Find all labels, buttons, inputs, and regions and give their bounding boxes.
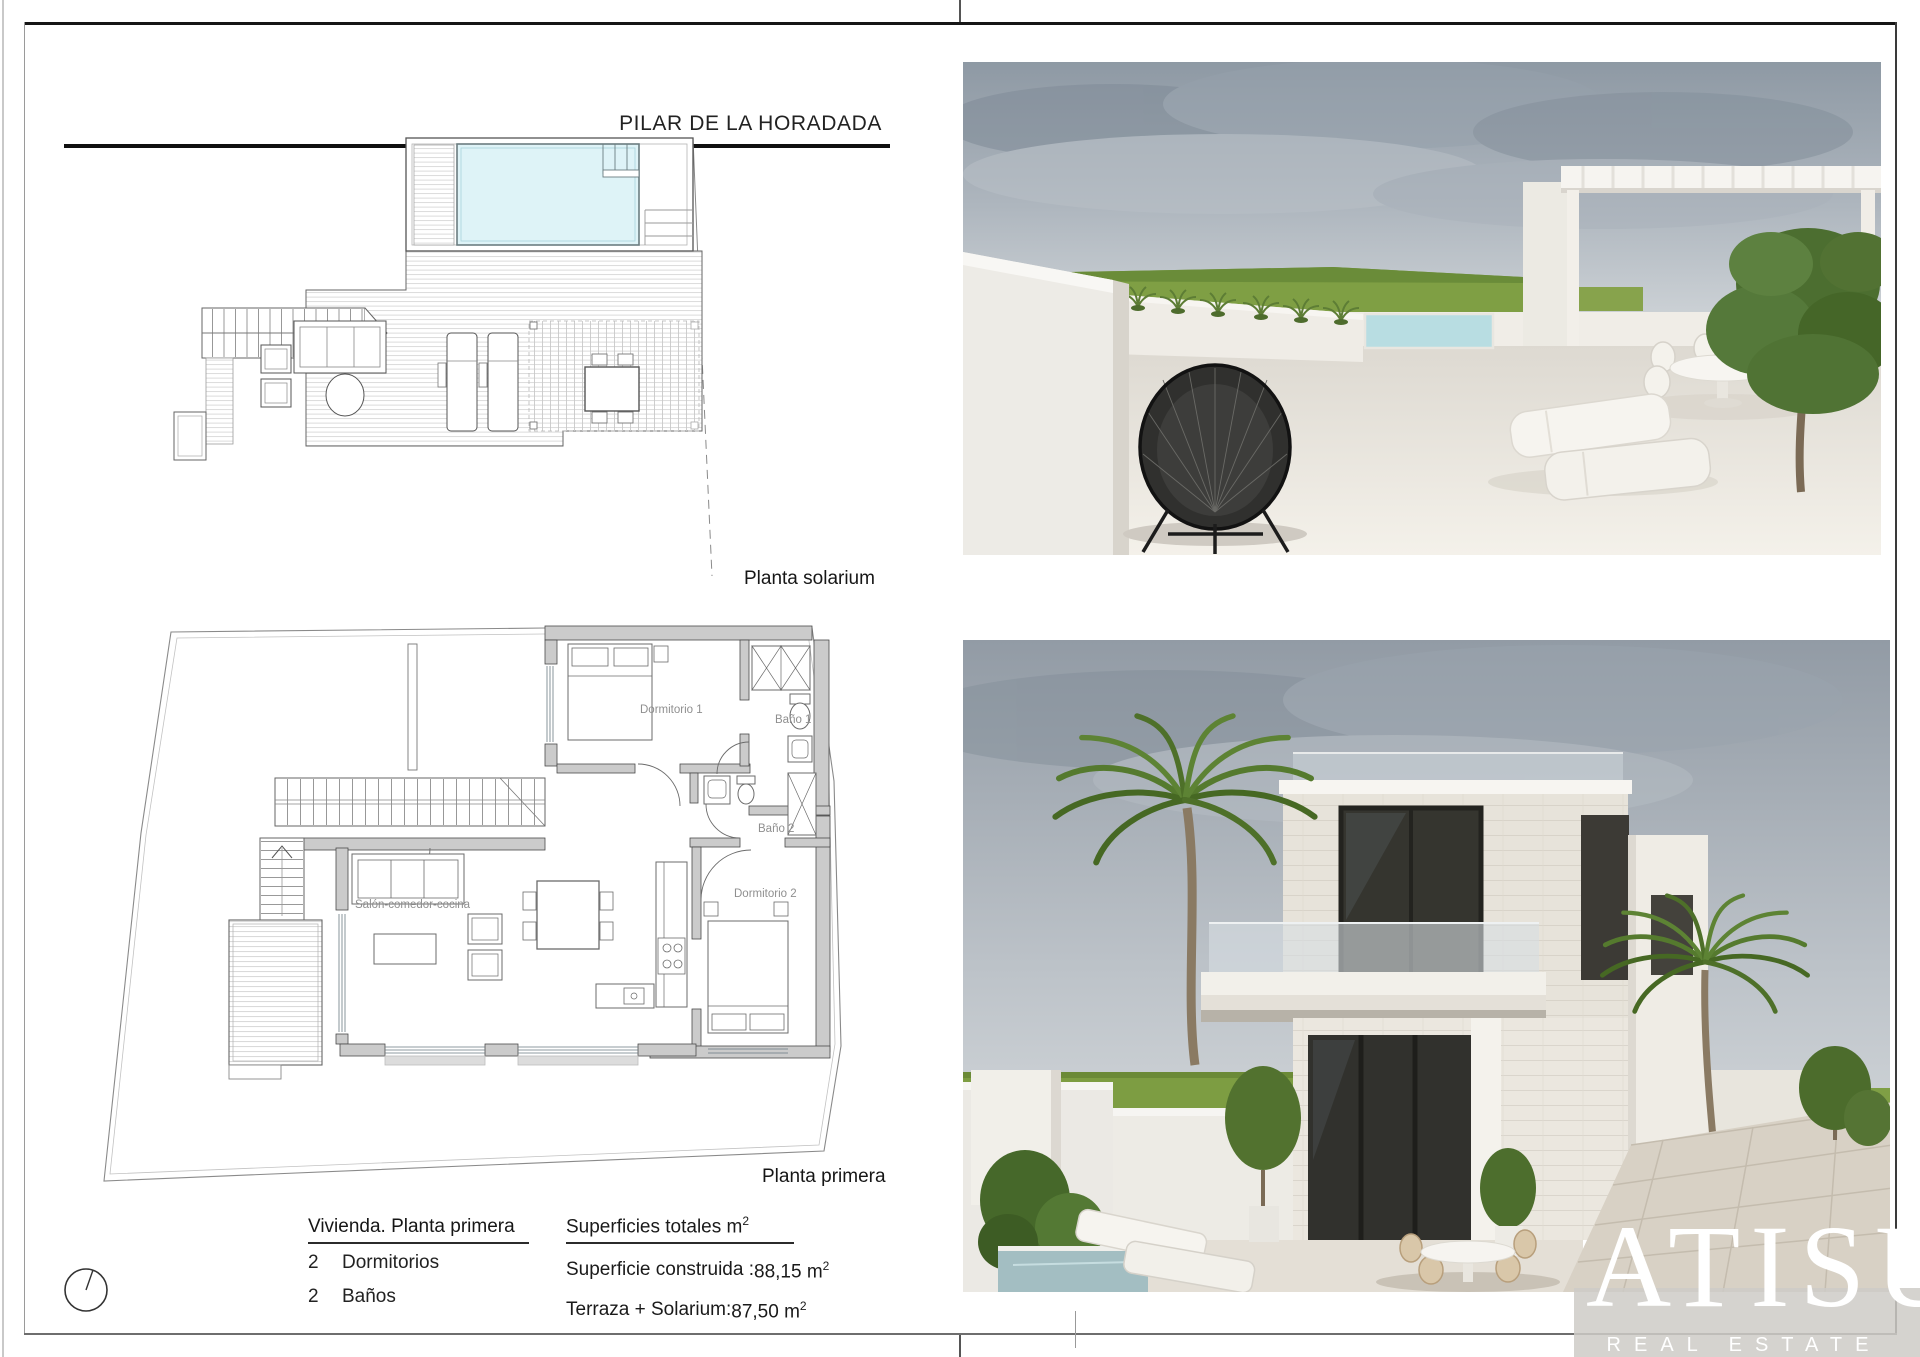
feature-bathrooms: 2Baños bbox=[308, 1286, 396, 1308]
surface-row-built: Superficie construida : 88,15 m2 bbox=[566, 1259, 794, 1283]
bedrooms-label: Dormitorios bbox=[342, 1252, 439, 1273]
crop-mark-bottom bbox=[959, 1335, 961, 1357]
rooftop-pool bbox=[1365, 314, 1493, 348]
brand-tagline: REAL ESTATE bbox=[1586, 1334, 1902, 1357]
sup-2: 2 bbox=[742, 1214, 749, 1228]
room-label-bedroom1: Dormitorio 1 bbox=[640, 704, 703, 716]
left-parapet-wall bbox=[963, 252, 1129, 555]
north-arrow-icon bbox=[60, 1262, 114, 1316]
entry-stairs bbox=[260, 838, 304, 920]
upper-window-right bbox=[1581, 815, 1629, 980]
solarium-plan-caption: Planta solarium bbox=[744, 568, 875, 590]
dining-table bbox=[523, 881, 613, 949]
room-label-bath2: Baño 2 bbox=[758, 823, 794, 835]
scan-edge-line bbox=[2, 0, 4, 1357]
terrace-value: 87,50 m2 bbox=[731, 1299, 806, 1323]
pool-deck-strip bbox=[414, 145, 454, 245]
living-armchairs bbox=[468, 914, 502, 980]
swimming-pool bbox=[457, 144, 639, 245]
crop-mark-top bbox=[959, 0, 961, 22]
pool-terrace bbox=[406, 138, 694, 251]
brochure-page: PILAR DE LA HORADADA bbox=[0, 0, 1920, 1357]
plot-boundary bbox=[104, 628, 841, 1181]
surfaces-heading: Superficies totales m2 bbox=[566, 1214, 794, 1244]
page-border-top bbox=[24, 22, 1897, 25]
balcony-glass bbox=[1209, 922, 1539, 976]
first-floor-plan: Dormitorio 1 Baño 1 Baño 2 Dormitorio 2 … bbox=[40, 616, 920, 1216]
armchairs bbox=[261, 345, 291, 407]
terrace-label: Terraza + Solarium: bbox=[566, 1299, 731, 1323]
coffee-table bbox=[374, 934, 436, 964]
bedrooms-qty: 2 bbox=[308, 1252, 342, 1274]
bathrooms-qty: 2 bbox=[308, 1286, 342, 1308]
wall-column bbox=[408, 644, 417, 770]
brand-logo-text: ATISÚ bbox=[1586, 1208, 1902, 1326]
page-border-left bbox=[24, 22, 25, 1334]
terrace bbox=[229, 920, 322, 1079]
room-label-living: Salón-comedor-cocina bbox=[355, 899, 471, 911]
built-label: Superficie construida : bbox=[566, 1259, 754, 1283]
wardrobe bbox=[752, 646, 810, 690]
photo-exterior-render bbox=[963, 640, 1890, 1292]
round-table bbox=[326, 374, 364, 416]
page-border-right bbox=[1895, 22, 1897, 1334]
room-label-bedroom2: Dormitorio 2 bbox=[734, 888, 797, 900]
bathrooms-label: Baños bbox=[342, 1286, 396, 1307]
first-floor-plan-caption: Planta primera bbox=[762, 1166, 886, 1188]
bed-2 bbox=[704, 902, 788, 1033]
surfaces-block: Superficies totales m2 Superficie constr… bbox=[566, 1214, 794, 1323]
crop-mark-bottom-2 bbox=[1075, 1311, 1076, 1348]
dwelling-heading: Vivienda. Planta primera bbox=[308, 1216, 529, 1244]
outdoor-sofa bbox=[294, 321, 386, 373]
bed-1 bbox=[568, 644, 668, 740]
solarium-floor-plan bbox=[166, 130, 911, 600]
surface-row-terrace: Terraza + Solarium: 87,50 m2 bbox=[566, 1299, 794, 1323]
photo-solarium-render bbox=[963, 62, 1881, 555]
feature-bedrooms: 2Dormitorios bbox=[308, 1252, 439, 1274]
staircase bbox=[275, 778, 545, 826]
room-label-bath1: Baño 1 bbox=[775, 714, 811, 726]
living-sofa bbox=[352, 854, 464, 904]
built-value: 88,15 m2 bbox=[754, 1259, 829, 1283]
planter-box bbox=[174, 412, 206, 460]
bathroom-1-fixtures bbox=[788, 694, 812, 762]
side-walkway bbox=[206, 358, 233, 444]
